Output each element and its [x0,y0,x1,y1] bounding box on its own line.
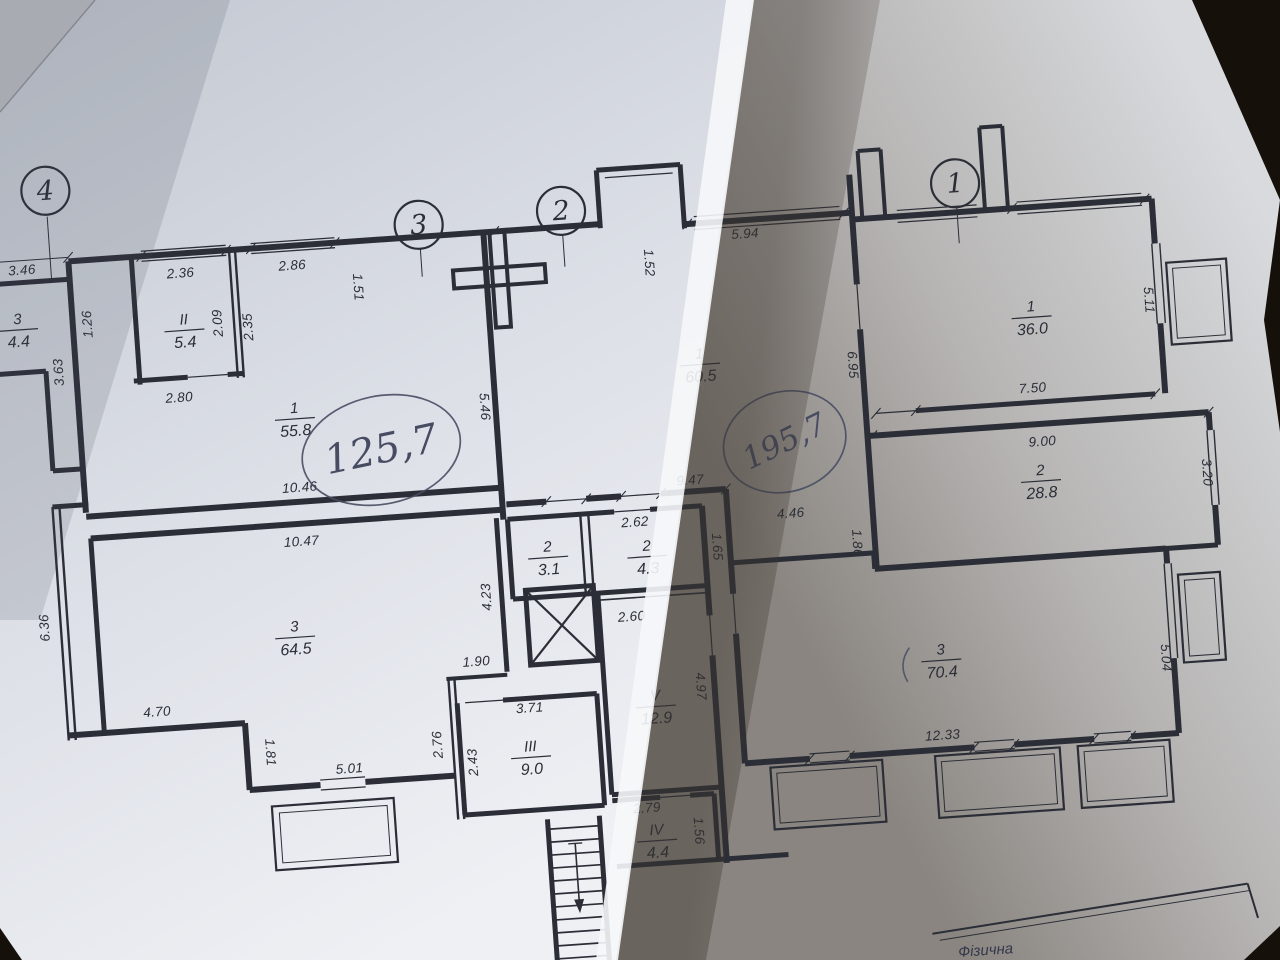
room-number: 1 [1026,298,1036,316]
room-number: 2 [542,538,553,556]
wall [1131,733,1179,736]
dimension-label: 10.46 [282,479,318,496]
room-area: 5.4 [174,334,197,353]
dimension-label: 7.50 [1018,379,1047,396]
room-area: 9.0 [520,760,543,779]
dimension-label: 5.11 [1141,286,1158,313]
dimension-label: 1.81 [262,738,279,766]
title-block-text: Фізична [958,940,1014,960]
dimension-label: 1.52 [641,249,658,278]
floor-plan-photo: 4321II5.434.4155.8364.523.124.3III9.0V12… [0,0,1280,960]
room-number: 2 [641,537,652,555]
dimension-label: 2.43 [464,748,481,778]
room-number: 1 [289,400,299,418]
dimension-label: 2.35 [239,313,256,343]
dimension-label: 6.95 [845,351,862,380]
room-area: 28.8 [1025,484,1058,503]
dimension-label: 2.60 [616,608,646,625]
dimension-label: 3.71 [515,699,543,716]
dimension-label: 1.90 [462,653,491,670]
dimension-label: 2.76 [429,730,446,760]
dimension-label: 2.62 [620,514,650,531]
dimension-label: 2.09 [209,309,226,339]
dimension-label: 5.04 [1158,643,1175,671]
wall [1215,505,1218,545]
dimension-label: 3.20 [1199,458,1216,487]
dimension-label: 4.23 [478,583,495,612]
room-area: 70.4 [926,663,958,682]
dimension-label: 12.33 [924,726,960,743]
room-number: III [524,738,538,756]
wall [1209,412,1210,430]
room-number: II [179,311,189,329]
axis-number: 3 [409,209,428,241]
dimension-label: 2.86 [277,257,307,274]
room-number: 2 [1035,462,1046,480]
dimension-label: 10.47 [283,533,319,550]
dimension-label: 5.46 [477,392,494,421]
dimension-label: 2.80 [164,389,194,406]
dimension-label: 5.01 [335,760,363,777]
axis-number: 2 [550,195,570,227]
room-area: 36.0 [1016,320,1048,339]
dimension-label: 1.51 [350,273,367,301]
dimension-label: 4.70 [143,703,172,720]
wall [1166,548,1167,563]
wall [228,373,244,374]
wall [979,126,1002,128]
dimension-label: 2.36 [165,265,195,282]
axis-number: 1 [945,168,964,200]
dimension-label: 9.00 [1028,433,1057,450]
room-area: 3.1 [537,561,560,580]
room-area: 64.5 [280,640,312,659]
wall [506,502,546,505]
wall [586,496,621,498]
wall [858,149,881,151]
wall [1152,199,1155,244]
dimension-label: 1.86 [849,529,866,558]
